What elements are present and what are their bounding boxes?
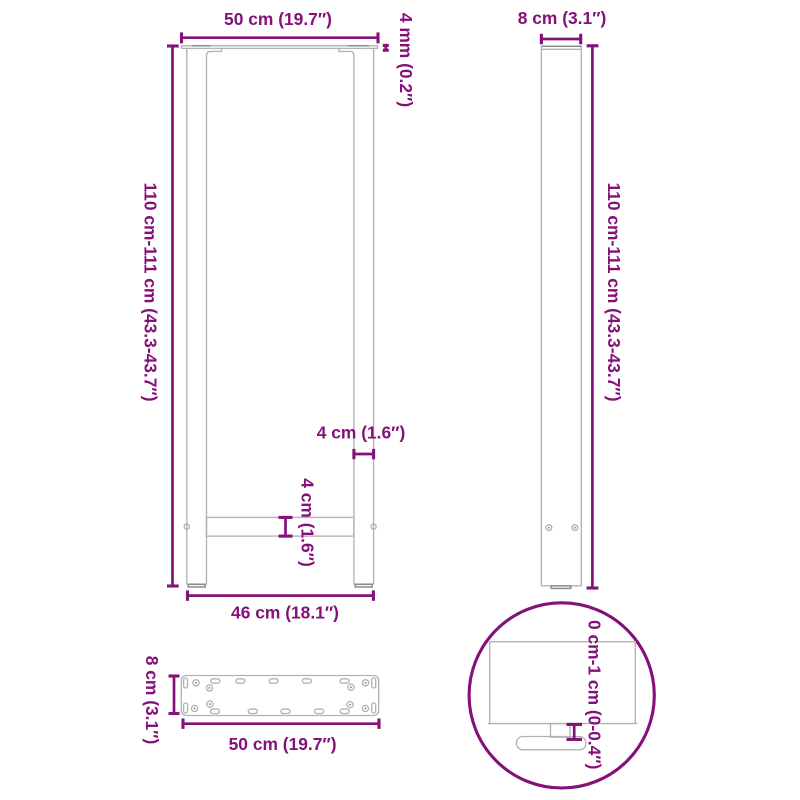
svg-text:8 cm (3.1″): 8 cm (3.1″) [518, 8, 607, 28]
svg-text:50 cm (19.7″): 50 cm (19.7″) [229, 734, 337, 754]
svg-text:110 cm-111 cm (43.3-43.7″): 110 cm-111 cm (43.3-43.7″) [141, 182, 161, 401]
svg-text:50 cm (19.7″): 50 cm (19.7″) [224, 9, 332, 29]
svg-text:4 cm (1.6″): 4 cm (1.6″) [297, 478, 317, 567]
svg-text:4 cm (1.6″): 4 cm (1.6″) [317, 423, 406, 443]
svg-text:8 cm (3.1″): 8 cm (3.1″) [142, 656, 162, 745]
svg-text:110 cm-111 cm (43.3-43.7″): 110 cm-111 cm (43.3-43.7″) [604, 182, 624, 401]
svg-text:4 mm (0.2″): 4 mm (0.2″) [396, 13, 416, 107]
svg-text:0 cm-1 cm (0-0.4″): 0 cm-1 cm (0-0.4″) [585, 620, 605, 769]
svg-text:46 cm (18.1″): 46 cm (18.1″) [231, 603, 339, 623]
